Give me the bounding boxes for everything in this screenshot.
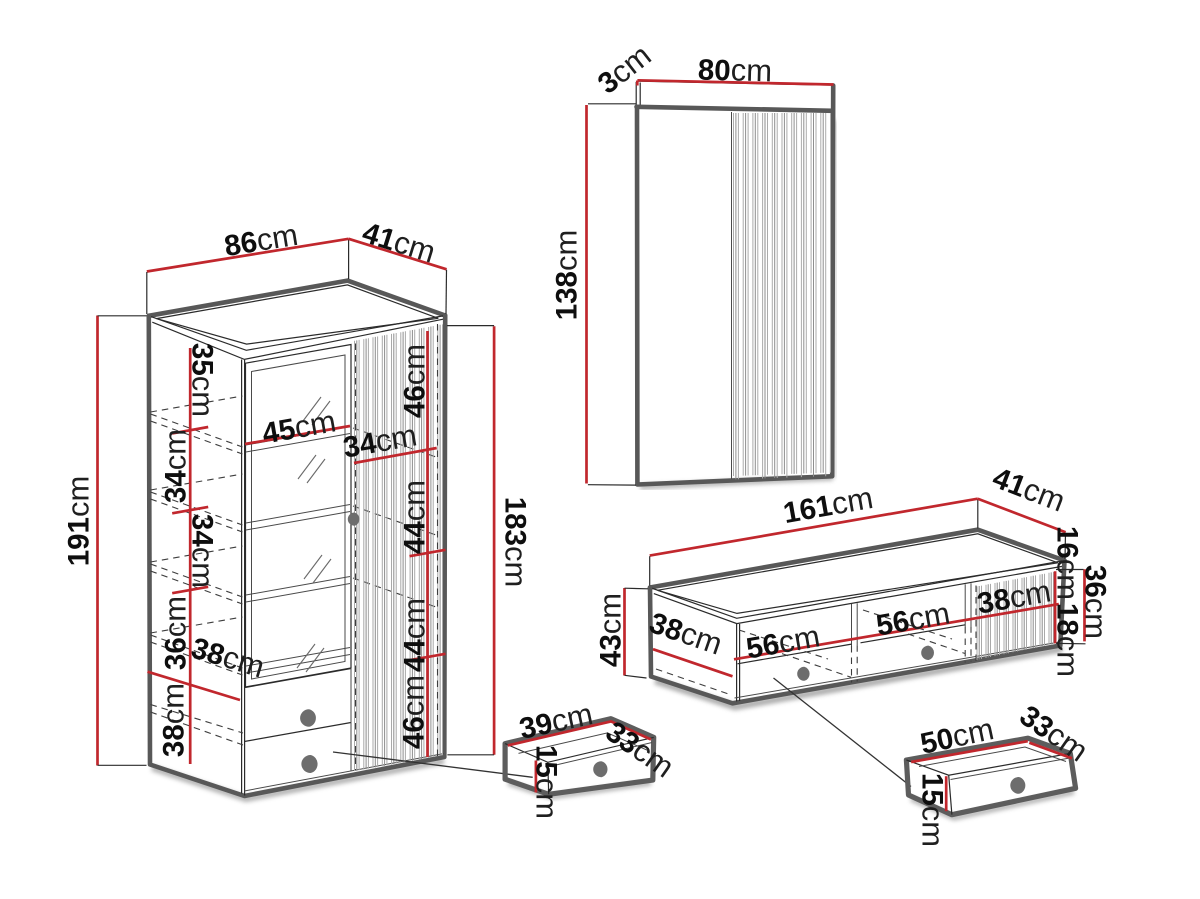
svg-text:46cm: 46cm bbox=[397, 344, 432, 418]
svg-text:183cm: 183cm bbox=[499, 497, 534, 588]
svg-text:34cm: 34cm bbox=[158, 429, 193, 503]
svg-text:38cm: 38cm bbox=[156, 683, 191, 757]
svg-text:44cm: 44cm bbox=[397, 480, 432, 554]
svg-text:15cm: 15cm bbox=[916, 773, 951, 847]
svg-text:138cm: 138cm bbox=[549, 230, 584, 321]
svg-text:43cm: 43cm bbox=[593, 593, 628, 667]
svg-text:36cm: 36cm bbox=[158, 596, 193, 670]
svg-text:15cm: 15cm bbox=[530, 745, 565, 819]
svg-text:191cm: 191cm bbox=[61, 476, 96, 567]
svg-text:80cm: 80cm bbox=[697, 52, 772, 89]
svg-text:35cm: 35cm bbox=[186, 343, 221, 417]
svg-text:44cm: 44cm bbox=[397, 598, 432, 672]
svg-text:46cm: 46cm bbox=[396, 675, 431, 749]
svg-text:34cm: 34cm bbox=[186, 514, 221, 588]
svg-text:36cm: 36cm bbox=[1079, 565, 1114, 639]
